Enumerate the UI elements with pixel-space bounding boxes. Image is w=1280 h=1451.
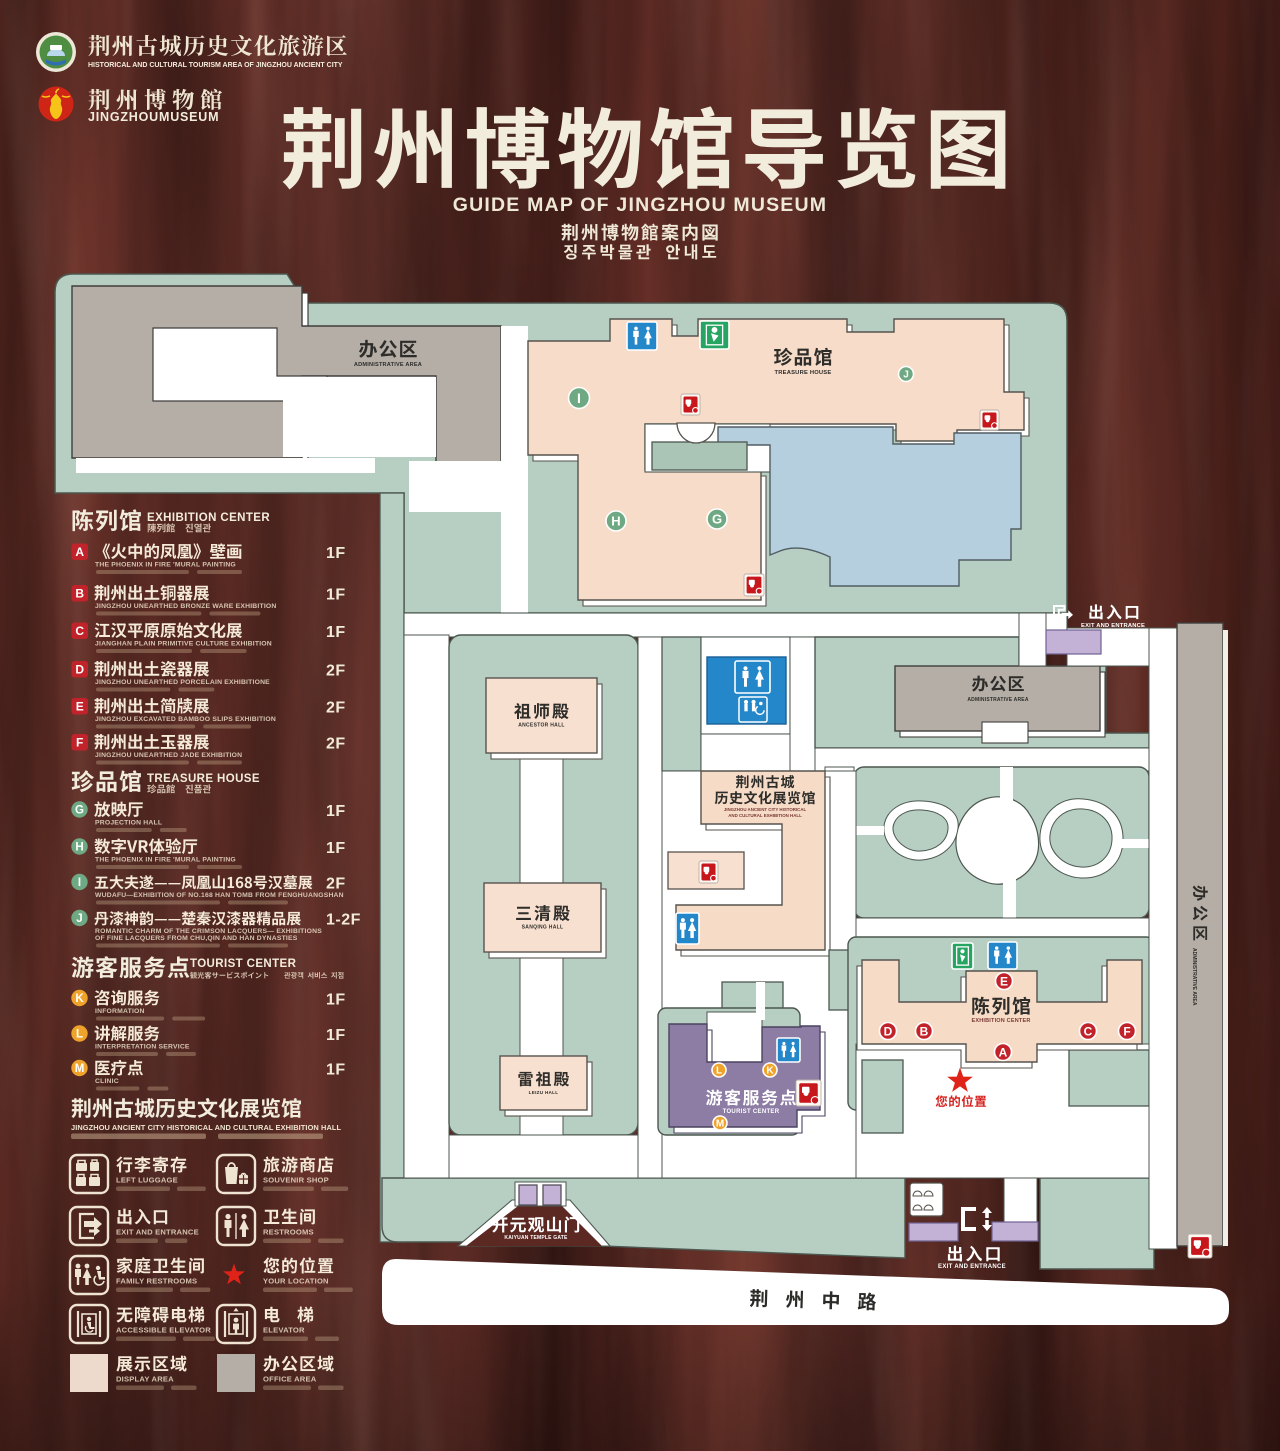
- svg-text:1F: 1F: [326, 992, 346, 1009]
- svg-text:RESTROOMS: RESTROOMS: [263, 1228, 314, 1237]
- svg-text:JINGZHOU ANCIENT CITY HISTORIC: JINGZHOU ANCIENT CITY HISTORICAL AND CUL…: [71, 1123, 341, 1132]
- svg-text:WUDAFU—EXHIBITION OF NO.168 HA: WUDAFU—EXHIBITION OF NO.168 HAN TOMB FRO…: [95, 892, 344, 899]
- svg-text:1F: 1F: [326, 587, 346, 604]
- svg-text:2F: 2F: [326, 736, 346, 753]
- svg-text:EXIT AND ENTRANCE: EXIT AND ENTRANCE: [116, 1228, 199, 1237]
- svg-text:LEIZU HALL: LEIZU HALL: [529, 1090, 559, 1095]
- svg-text:2F: 2F: [326, 663, 346, 680]
- svg-text:L: L: [716, 1066, 722, 1077]
- svg-text:JINGZHOUMUSEUM: JINGZHOUMUSEUM: [88, 110, 219, 124]
- svg-text:JINGZHOU UNEARTHED JADE EXHIBI: JINGZHOU UNEARTHED JADE EXHIBITION: [95, 752, 242, 759]
- svg-text:D: D: [75, 663, 84, 677]
- svg-text:JINGZHOU UNEARTHED PORCELAIN E: JINGZHOU UNEARTHED PORCELAIN EXHIBITIONE: [95, 679, 270, 686]
- svg-text:B: B: [75, 587, 84, 601]
- svg-text:G: G: [75, 805, 84, 817]
- svg-text:E: E: [1000, 974, 1008, 988]
- svg-text:AND CULTURAL EXHIBITION HALL: AND CULTURAL EXHIBITION HALL: [728, 813, 802, 818]
- svg-text:EXIT AND ENTRANCE: EXIT AND ENTRANCE: [938, 1264, 1006, 1270]
- svg-text:ELEVATOR: ELEVATOR: [263, 1326, 305, 1335]
- svg-text:H: H: [75, 842, 83, 854]
- svg-text:TOURIST CENTER: TOURIST CENTER: [723, 1109, 780, 1115]
- svg-text:2F: 2F: [326, 700, 346, 717]
- svg-text:JINGZHOU EXCAVATED BAMBOO SLIP: JINGZHOU EXCAVATED BAMBOO SLIPS EXHIBITI…: [95, 716, 276, 723]
- svg-text:INTERPRETATION SERVICE: INTERPRETATION SERVICE: [95, 1044, 190, 1051]
- svg-text:1F: 1F: [326, 803, 346, 820]
- svg-text:ADMINISTRATIVE AREA: ADMINISTRATIVE AREA: [1191, 948, 1197, 1006]
- svg-text:J: J: [76, 913, 82, 925]
- svg-text:1-2F: 1-2F: [326, 912, 361, 929]
- svg-text:H: H: [611, 514, 620, 529]
- svg-text:L: L: [76, 1029, 83, 1041]
- svg-text:M: M: [75, 1063, 85, 1075]
- svg-text:J: J: [903, 370, 909, 381]
- svg-text:CLINIC: CLINIC: [95, 1078, 119, 1085]
- svg-text:ACCESSIBLE ELEVATOR: ACCESSIBLE ELEVATOR: [116, 1326, 211, 1335]
- svg-text:I: I: [78, 877, 81, 889]
- svg-text:F: F: [1123, 1024, 1130, 1038]
- svg-text:E: E: [76, 700, 84, 714]
- svg-text:M: M: [716, 1119, 724, 1130]
- svg-text:1F: 1F: [326, 1027, 346, 1044]
- svg-text:INFORMATION: INFORMATION: [95, 1008, 145, 1015]
- svg-text:G: G: [712, 512, 722, 527]
- svg-text:TREASURE HOUSE: TREASURE HOUSE: [147, 773, 260, 785]
- svg-text:EXHIBITION CENTER: EXHIBITION CENTER: [971, 1018, 1030, 1024]
- svg-text:C: C: [75, 624, 84, 638]
- svg-text:A: A: [999, 1045, 1008, 1059]
- svg-text:ADMINISTRATIVE AREA: ADMINISTRATIVE AREA: [967, 697, 1028, 703]
- svg-text:F: F: [76, 736, 83, 750]
- svg-text:JIANGHAN PLAIN PRIMITIVE CULTU: JIANGHAN PLAIN PRIMITIVE CULTURE EXHIBIT…: [95, 641, 272, 648]
- svg-text:K: K: [75, 993, 84, 1005]
- svg-text:SOUVENIR SHOP: SOUVENIR SHOP: [263, 1176, 329, 1185]
- svg-text:THE PHOENIX IN FIRE 'MURAL PAI: THE PHOENIX IN FIRE 'MURAL PAINTING: [95, 857, 236, 864]
- svg-text:JINGZHOU ANCIENT CITY HISTORIC: JINGZHOU ANCIENT CITY HISTORICAL: [724, 807, 807, 812]
- svg-text:DISPLAY AREA: DISPLAY AREA: [116, 1375, 174, 1384]
- svg-text:ROMANTIC CHARM OF THE CRIMSON: ROMANTIC CHARM OF THE CRIMSON LACQUERS— …: [95, 928, 322, 935]
- svg-text:FAMILY RESTROOMS: FAMILY RESTROOMS: [116, 1277, 197, 1286]
- svg-text:ADMINISTRATIVE AREA: ADMINISTRATIVE AREA: [354, 362, 422, 368]
- svg-text:1F: 1F: [326, 624, 346, 641]
- svg-text:TREASURE HOUSE: TREASURE HOUSE: [775, 370, 832, 376]
- svg-text:GUIDE MAP OF JINGZHOU MUSEUM: GUIDE MAP OF JINGZHOU MUSEUM: [453, 194, 828, 216]
- svg-text:1F: 1F: [326, 1062, 346, 1079]
- svg-text:OFFICE AREA: OFFICE AREA: [263, 1375, 317, 1384]
- svg-text:C: C: [1084, 1024, 1093, 1038]
- svg-text:B: B: [920, 1024, 929, 1038]
- svg-text:PROJECTION HALL: PROJECTION HALL: [95, 820, 162, 827]
- svg-text:KAIYUAN TEMPLE GATE: KAIYUAN TEMPLE GATE: [504, 1235, 568, 1241]
- svg-text:THE PHOENIX IN FIRE 'MURAL PAI: THE PHOENIX IN FIRE 'MURAL PAINTING: [95, 562, 236, 569]
- svg-text:YOUR LOCATION: YOUR LOCATION: [263, 1277, 329, 1286]
- svg-text:JINGZHOU UNEARTHED BRONZE WARE: JINGZHOU UNEARTHED BRONZE WARE EXHIBITIO…: [95, 603, 277, 610]
- svg-text:TOURIST CENTER: TOURIST CENTER: [190, 958, 297, 970]
- svg-text:1F: 1F: [326, 545, 346, 562]
- svg-text:I: I: [577, 390, 581, 406]
- svg-text:OF FINE LACQUERS FROM CHU,QIN: OF FINE LACQUERS FROM CHU,QIN AND HAN DY…: [95, 935, 298, 942]
- svg-text:A: A: [75, 545, 84, 559]
- svg-text:EXIT AND ENTRANCE: EXIT AND ENTRANCE: [1081, 623, 1145, 629]
- svg-text:LEFT LUGGAGE: LEFT LUGGAGE: [116, 1176, 178, 1185]
- svg-text:EXHIBITION CENTER: EXHIBITION CENTER: [147, 512, 270, 524]
- svg-text:2F: 2F: [326, 876, 346, 893]
- svg-text:D: D: [884, 1024, 893, 1038]
- svg-text:SANQING HALL: SANQING HALL: [522, 925, 564, 931]
- svg-text:K: K: [766, 1066, 774, 1077]
- svg-text:ANCESTOR HALL: ANCESTOR HALL: [518, 723, 565, 729]
- svg-text:1F: 1F: [326, 840, 346, 857]
- svg-text:HISTORICAL AND CULTURAL TOURIS: HISTORICAL AND CULTURAL TOURISM AREA OF …: [88, 62, 343, 69]
